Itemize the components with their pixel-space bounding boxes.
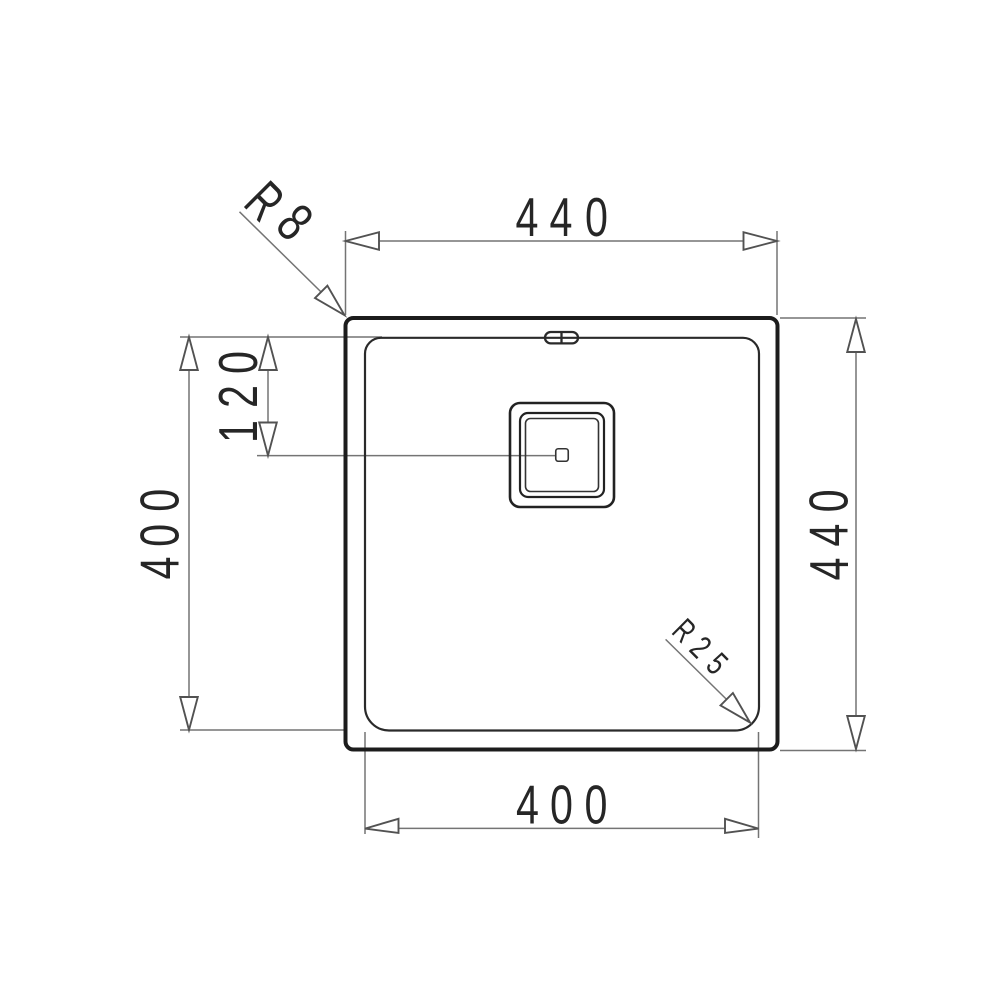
svg-text:0: 0	[130, 489, 191, 512]
svg-text:0: 0	[208, 351, 269, 374]
svg-text:4: 4	[130, 557, 191, 580]
svg-text:0: 0	[799, 489, 860, 512]
svg-text:0: 0	[585, 187, 608, 248]
svg-text:2: 2	[208, 385, 269, 408]
svg-text:4: 4	[516, 187, 539, 248]
svg-text:4: 4	[799, 558, 860, 581]
svg-text:0: 0	[550, 775, 573, 836]
svg-text:4: 4	[550, 187, 573, 248]
svg-text:4: 4	[516, 775, 539, 836]
svg-text:0: 0	[130, 524, 191, 547]
svg-text:4: 4	[799, 524, 860, 547]
svg-text:1: 1	[208, 420, 269, 443]
svg-text:0: 0	[585, 775, 608, 836]
